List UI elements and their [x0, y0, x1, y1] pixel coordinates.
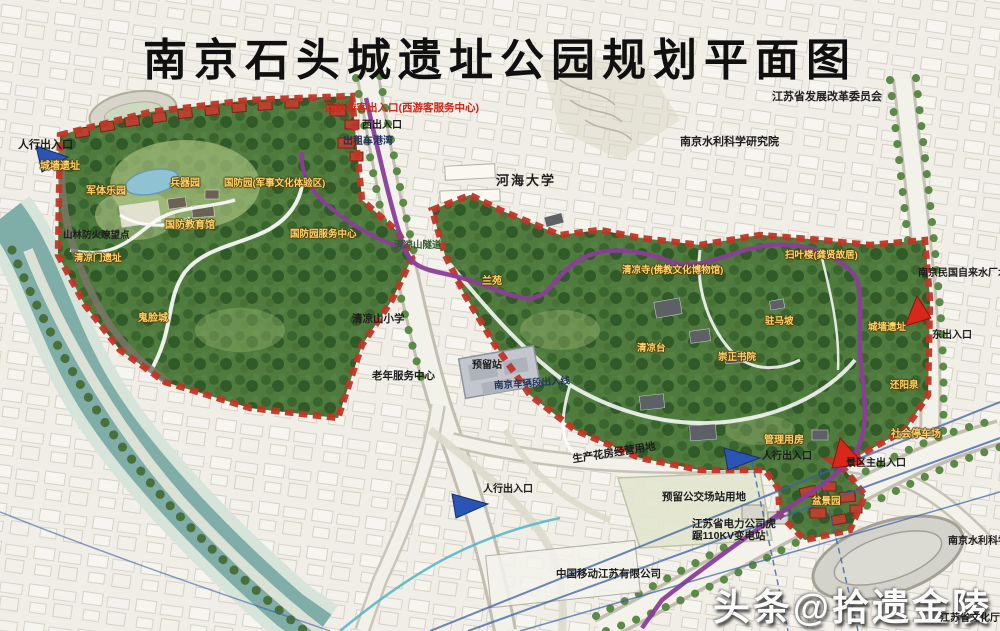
label-main-gate: 景区主出入口 — [846, 458, 906, 470]
label-fire-lookout: 山林防火瞭望点 — [63, 230, 130, 241]
map-title: 南京石头城遗址公园规划平面图 — [0, 24, 1000, 88]
label-wall-ruins-west: 城墙遗址 — [40, 161, 80, 173]
label-southeast-pedestrian-entrance: 人行出入口 — [762, 451, 812, 463]
label-public-parking: 社会停车场 — [891, 429, 941, 441]
label-hydraulic-institute: 南京水利科学研究院 — [680, 136, 779, 149]
label-management-house: 管理用房 — [764, 435, 804, 447]
label-primary-school: 清凉山小学 — [352, 313, 405, 325]
label-wall-ruins-east: 城墙遗址 — [868, 322, 906, 333]
label-bus-depot-land: 预留公交场站用地 — [662, 491, 746, 503]
label-substation: 江苏省电力公司虎踞110KV变电站 — [692, 518, 782, 543]
label-weapons-garden: 兵器园 — [170, 178, 200, 190]
label-qingliang-gate: 清凉门遗址 — [74, 253, 122, 264]
label-huanyang-spring: 还阳泉 — [890, 380, 919, 391]
label-zhuma-slope: 驻马坡 — [765, 316, 794, 327]
label-defense-zone: 国防园(军事文化体验区) — [224, 178, 325, 189]
label-tunnel: 清凉山隧道 — [394, 240, 442, 251]
park-planning-map: 南京石头城遗址公园规划平面图 头条@拾遗金陵 人行出入口 团队游客出入口(西游客… — [0, 0, 1000, 631]
label-china-mobile: 中国移动江苏有限公司 — [556, 568, 661, 580]
label-hydraulic-institute-se: 南京水利科学 — [948, 536, 1000, 548]
label-defense-hall: 国防教育馆 — [165, 220, 215, 232]
label-lan-garden: 兰苑 — [482, 276, 502, 288]
label-taxi-bay: 出租车港湾 — [343, 136, 393, 148]
label-bonsai-garden: 盆景园 — [812, 496, 841, 507]
label-qingliang-temple: 清凉寺(佛教文化博物馆) — [622, 265, 723, 276]
label-south-pedestrian-entrance: 人行出入口 — [483, 484, 533, 496]
label-saoye-tower: 扫叶楼(龚贤故居) — [785, 250, 858, 261]
label-chongzheng-academy: 崇正书院 — [718, 352, 756, 363]
label-reserved-station: 预留站 — [472, 360, 502, 372]
label-jiangsu-drc: 江苏省发展改革委员会 — [772, 91, 882, 104]
label-defense-center: 国防园服务中心 — [290, 229, 357, 240]
label-ghost-face-wall: 鬼脸城 — [138, 313, 168, 325]
label-east-gate: 东出入口 — [932, 330, 972, 342]
label-elderly-center: 老年服务中心 — [372, 370, 435, 382]
label-west-pedestrian-entrance: 人行出入口 — [18, 139, 73, 152]
label-west-gate: 西出入口 — [362, 120, 402, 132]
label-waterworks-tower: 南京民国自来水厂水塔 — [918, 268, 1000, 280]
label-hehai-university: 河海大学 — [496, 173, 556, 188]
label-group-tour-entrance: 团队游客出入口(西游客服务中心) — [325, 102, 479, 114]
label-qingliang-terrace: 清凉台 — [637, 343, 666, 354]
label-military-park: 军体乐园 — [86, 186, 126, 198]
label-culture-dept: 江苏省文化厅 — [940, 613, 1000, 625]
